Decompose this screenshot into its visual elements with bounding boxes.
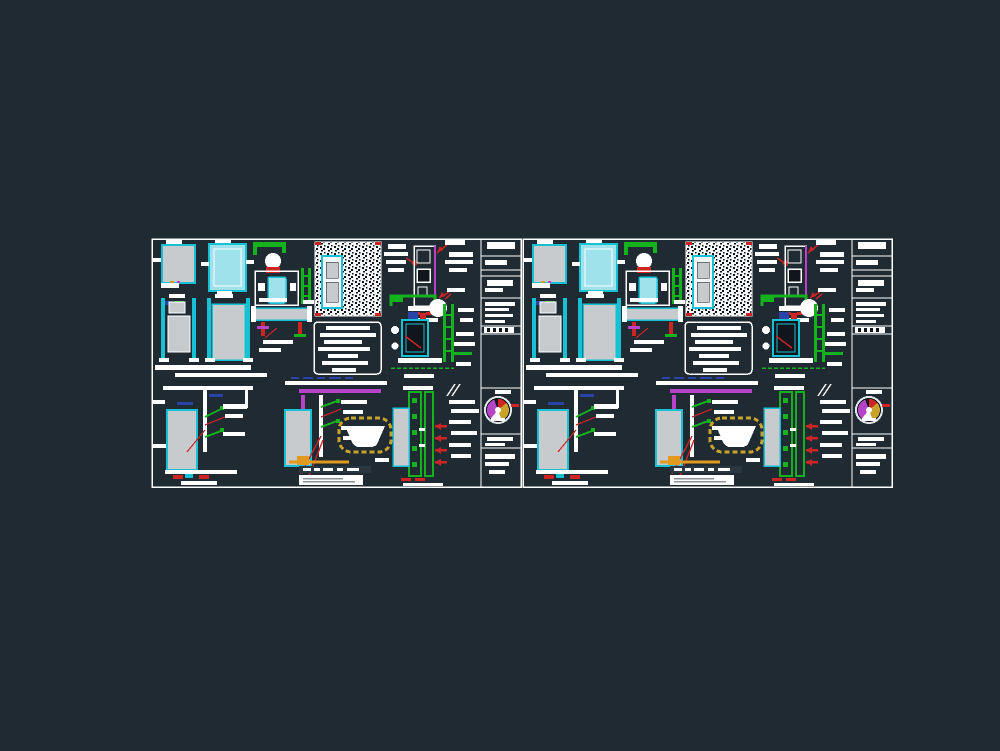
detail-sheet-left <box>151 238 522 488</box>
sheet-drawing <box>522 238 893 488</box>
detail-sheet-right <box>522 238 893 488</box>
stamp-logo <box>856 397 890 423</box>
bathtub-icon <box>345 426 385 447</box>
frame-elevation-cyan <box>572 240 625 295</box>
cad-canvas <box>0 0 1000 751</box>
frame-elevation-small <box>524 240 566 288</box>
notes-panel <box>314 322 381 374</box>
toilet-plan-detail <box>624 242 682 305</box>
annotation-stack-mid-right <box>825 332 846 366</box>
frame-section-left <box>530 294 570 362</box>
frame-elevation-small <box>153 240 195 288</box>
annotation-stack-mid-right <box>454 332 475 366</box>
annotation-stack-top-right <box>816 252 844 272</box>
wall-section-bathtub <box>285 377 391 485</box>
wall-section-a <box>524 386 624 485</box>
wall-section-bathtub <box>656 377 762 485</box>
bathtub-icon <box>716 426 756 447</box>
stamp-logo <box>485 397 519 423</box>
frame-section-left <box>159 294 199 362</box>
sheet-drawing <box>151 238 522 488</box>
toilet-plan-detail <box>253 242 311 305</box>
wall-section-c <box>764 384 850 486</box>
beam-plan-detail <box>251 298 312 352</box>
notes-panel <box>685 322 752 374</box>
annotation-stack-top-right <box>445 252 473 272</box>
wall-section-a <box>153 386 253 485</box>
beam-plan-detail <box>622 298 683 352</box>
hatched-wall-section <box>674 242 752 316</box>
title-strip <box>852 242 892 474</box>
hatched-wall-section <box>303 242 381 316</box>
frame-elevation-cyan <box>201 240 254 295</box>
title-strip <box>481 242 521 474</box>
wall-section-c <box>393 384 479 486</box>
